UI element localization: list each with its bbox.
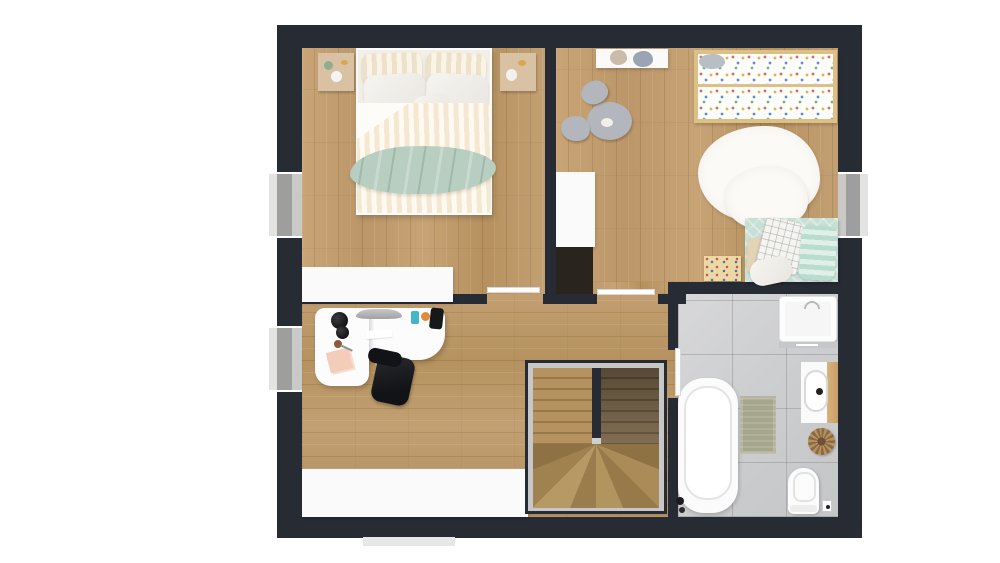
shower-door [779, 342, 837, 348]
toilet-paper-holder [822, 500, 832, 512]
stair-flight-right [601, 368, 659, 444]
window-kids-room [838, 172, 868, 238]
kids-dark-cabinet [556, 247, 593, 294]
floor-plan-canvas [0, 0, 1000, 563]
tub-drain-icon [679, 507, 685, 513]
sink-faucet-icon [816, 388, 823, 395]
stair-divider-wall [592, 368, 601, 438]
kids-room-door [597, 289, 655, 295]
bathtub-basin [684, 386, 732, 500]
crib-pillow [699, 54, 725, 69]
nightstand-left [318, 53, 354, 91]
phone-icon [411, 311, 419, 324]
wall-bathroom-left-upper [668, 282, 678, 350]
teddy-bear-blue-icon [633, 51, 653, 67]
stair-winder-treads [533, 444, 659, 508]
office-sideboard [302, 469, 528, 517]
bathroom-door [675, 348, 681, 396]
monitor-icon [356, 309, 402, 319]
shower-cabin [779, 296, 837, 342]
shower-faucet-icon [804, 301, 820, 309]
kids-wall-shelf [596, 49, 668, 68]
stair-flight-left [533, 368, 592, 444]
window-office [269, 326, 302, 392]
plant-icon [324, 61, 333, 70]
tub-faucet-icon [676, 497, 684, 505]
bedroom-wardrobe [302, 267, 453, 302]
toy-icon [601, 118, 613, 127]
toilet [788, 468, 819, 514]
play-table [587, 102, 632, 140]
wall-bedroom-kids-divider [545, 48, 556, 294]
vase-icon [331, 71, 342, 82]
daybed-pillow-mint [798, 225, 838, 281]
desk-lamp-arm [336, 326, 349, 339]
nightstand-right [500, 53, 536, 91]
window-bedroom [269, 172, 302, 238]
toy-organizer [704, 256, 741, 281]
wall-hall-mid [543, 294, 597, 304]
kids-wardrobe [556, 172, 595, 247]
laundry-basket [808, 428, 835, 455]
table-lamp-icon [518, 60, 526, 66]
bedroom-door [487, 287, 540, 293]
tablet-icon [429, 307, 444, 329]
gold-decor-icon [341, 60, 348, 65]
teddy-bear-icon [610, 50, 627, 65]
vase-icon [506, 69, 517, 81]
bath-mat [740, 396, 776, 454]
exterior-step [363, 537, 455, 546]
snack-bowl-icon [421, 312, 430, 321]
vanity-wood-shelf [827, 362, 838, 423]
